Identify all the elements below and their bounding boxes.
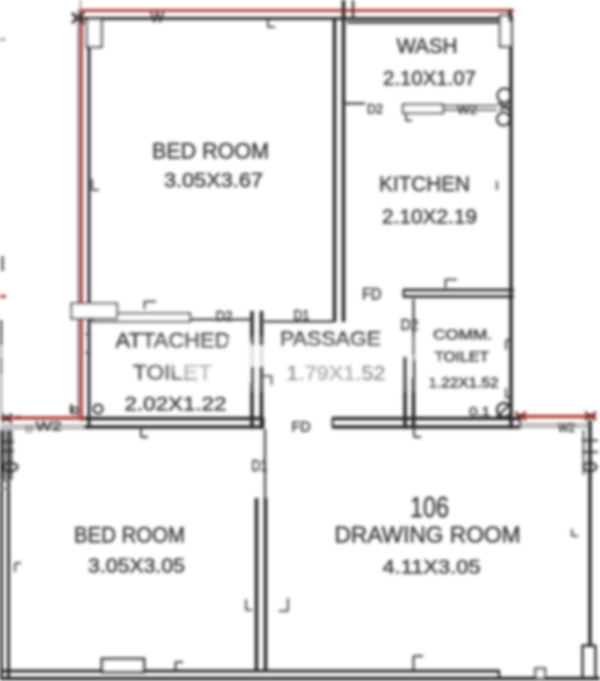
svg-text:3.05X3.67: 3.05X3.67: [164, 170, 263, 192]
svg-text:D1: D1: [294, 308, 310, 324]
svg-text:2.10X1.07: 2.10X1.07: [383, 68, 476, 90]
svg-text:COMM.: COMM.: [433, 327, 492, 344]
svg-text:DRAWING ROOM: DRAWING ROOM: [335, 522, 521, 548]
svg-text:WASH: WASH: [397, 35, 458, 58]
svg-text:KITCHEN: KITCHEN: [379, 173, 470, 196]
svg-text:4.11X3.05: 4.11X3.05: [383, 557, 481, 579]
svg-text:D2: D2: [216, 308, 233, 325]
svg-text:BED ROOM: BED ROOM: [152, 139, 269, 164]
svg-text:FD: FD: [362, 286, 382, 304]
svg-text:W2: W2: [457, 102, 477, 117]
svg-text:W: W: [151, 9, 165, 26]
svg-text:2.02X1.22: 2.02X1.22: [125, 394, 227, 416]
svg-text:0.1: 0.1: [469, 404, 490, 419]
svg-text:TOILET: TOILET: [434, 349, 489, 366]
svg-text:D1: D1: [252, 458, 268, 475]
svg-text:W2: W2: [558, 421, 575, 435]
svg-text:W2: W2: [36, 420, 62, 434]
svg-text:FD: FD: [292, 419, 311, 436]
svg-text:m: m: [406, 340, 441, 387]
svg-text:106: 106: [410, 492, 449, 524]
svg-text:BED ROOM: BED ROOM: [74, 523, 185, 548]
svg-text:3.05X3.05: 3.05X3.05: [88, 556, 185, 578]
svg-text:D2: D2: [367, 101, 383, 117]
svg-text:D2: D2: [401, 317, 419, 334]
svg-text:2.10X2.19: 2.10X2.19: [382, 207, 477, 229]
